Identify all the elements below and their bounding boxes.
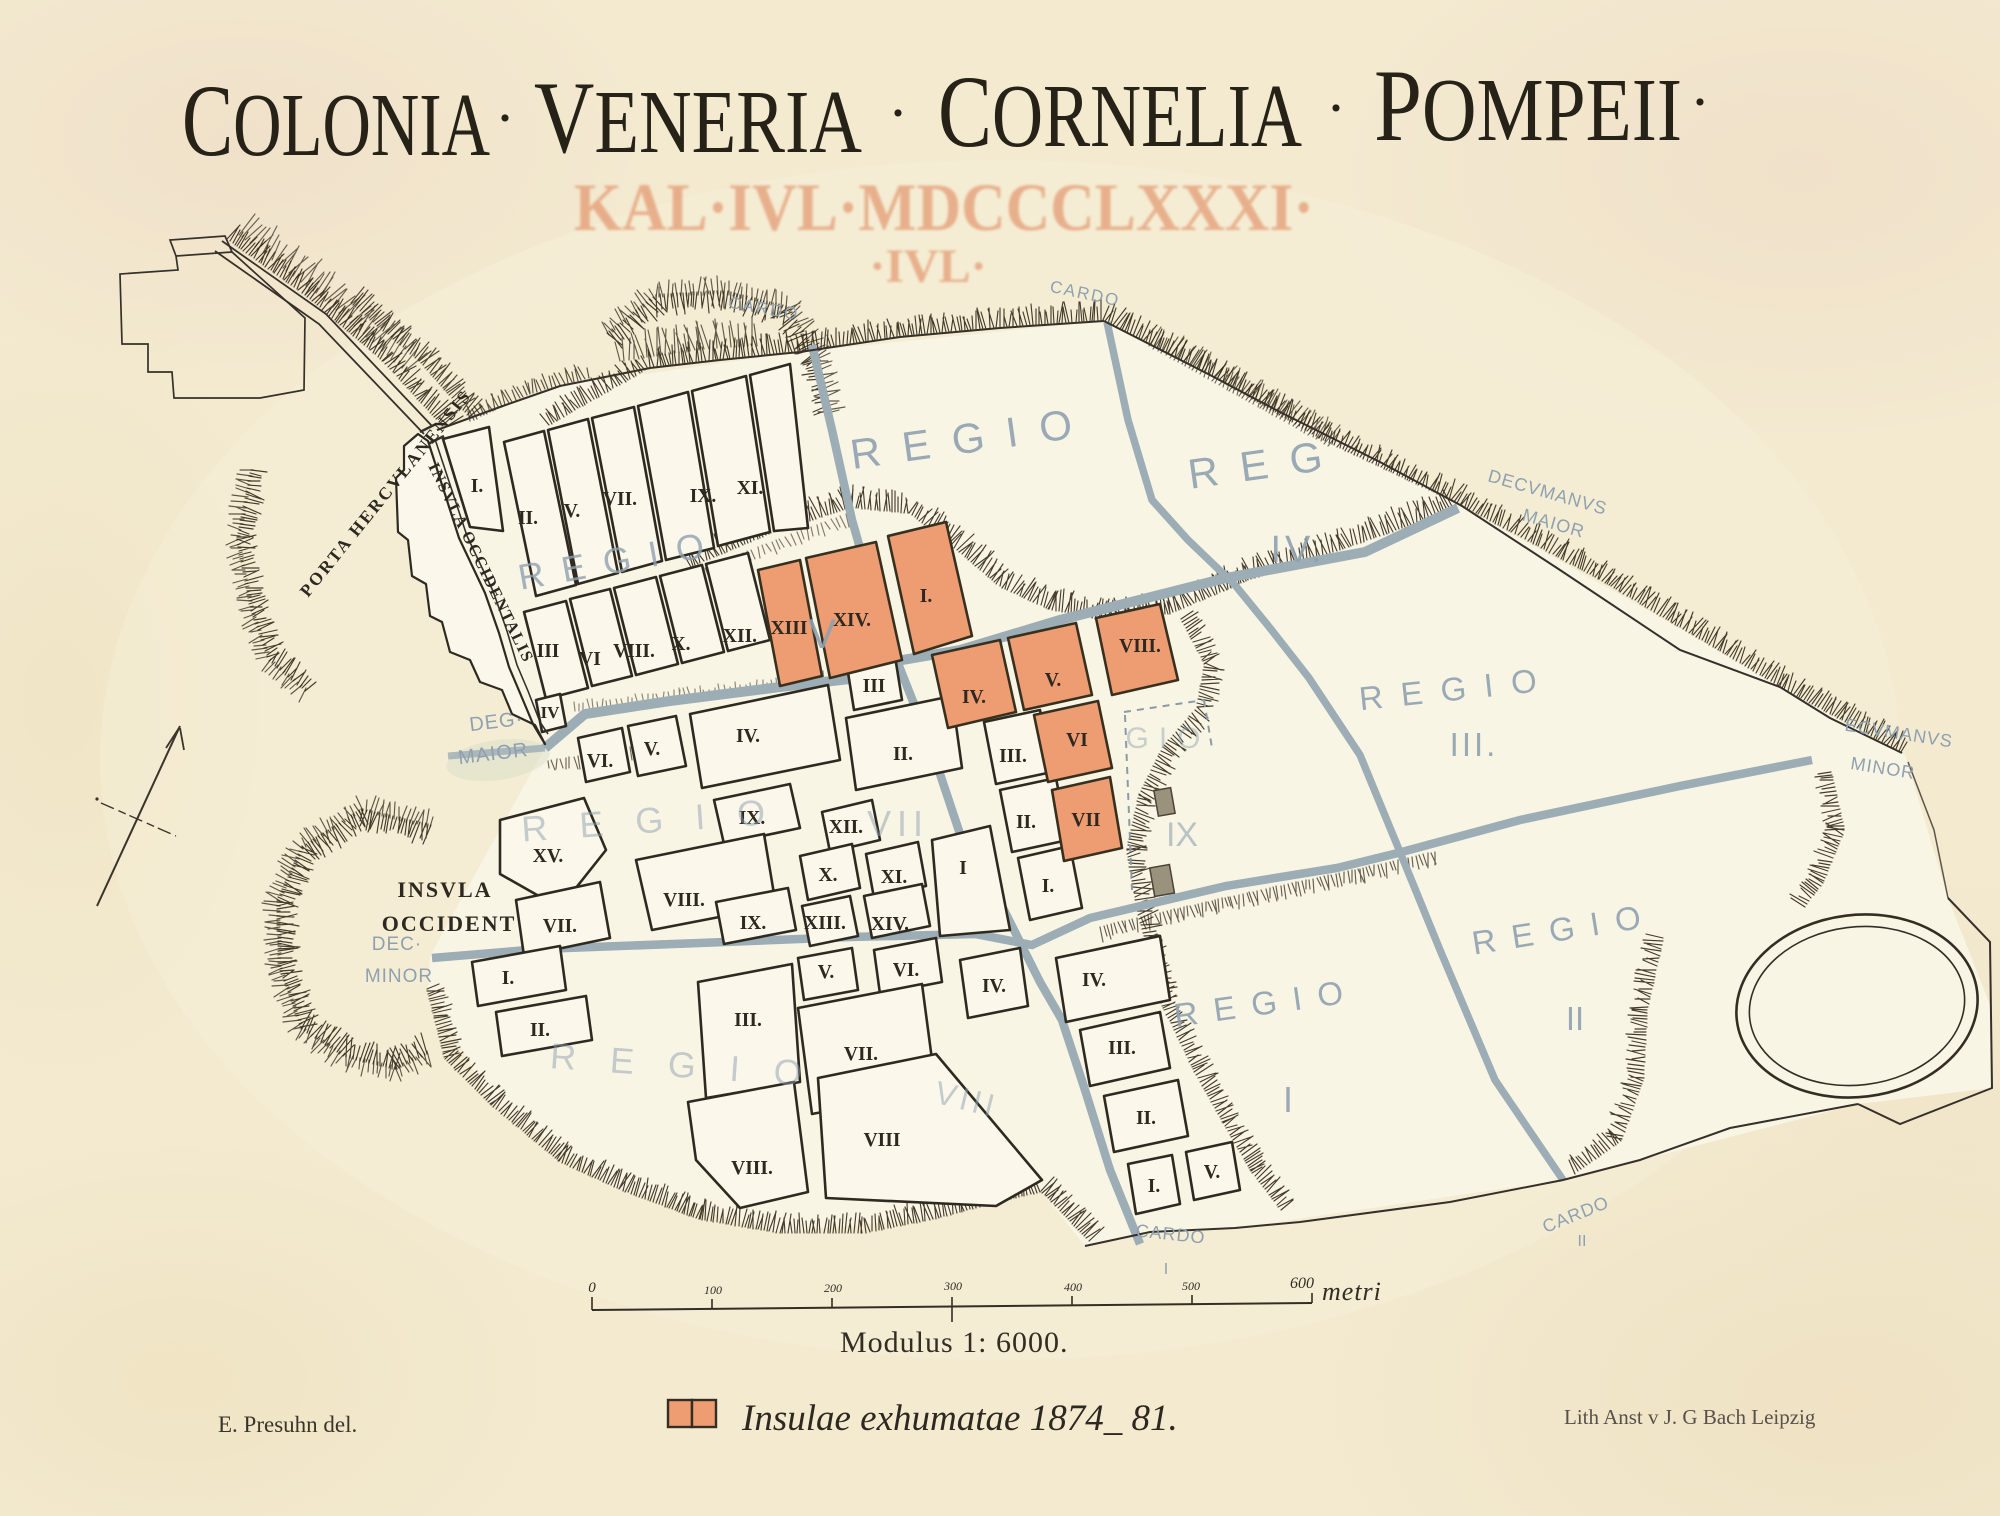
svg-text:VII: VII [1071, 810, 1100, 831]
svg-text:KAL·IVL·MDCCCLXXXI·: KAL·IVL·MDCCCLXXXI· [574, 169, 1314, 245]
svg-text:II.: II. [518, 508, 538, 529]
svg-text:V.: V. [564, 501, 581, 522]
svg-text:X.: X. [672, 634, 691, 655]
svg-text:·: · [495, 85, 515, 151]
svg-text:IX.: IX. [690, 486, 717, 507]
svg-text:XII.: XII. [723, 626, 757, 647]
svg-text:GIO: GIO [1125, 722, 1210, 755]
svg-text:II.: II. [1136, 1108, 1156, 1129]
svg-text:II.: II. [530, 1020, 550, 1041]
svg-text:III: III [863, 676, 886, 697]
svg-text:metri: metri [1322, 1277, 1382, 1306]
svg-text:V.: V. [1045, 670, 1062, 691]
svg-text:Lith Anst v J. G Bach Leipzig: Lith Anst v J. G Bach Leipzig [1564, 1405, 1816, 1429]
svg-text:I: I [959, 858, 967, 879]
svg-text:XII.: XII. [829, 817, 863, 838]
svg-text:COLONIA: COLONIA [182, 64, 490, 178]
svg-text:IV: IV [541, 703, 561, 722]
svg-text:V.: V. [818, 962, 835, 983]
svg-text:VIII.: VIII. [1119, 636, 1161, 657]
svg-text:CORNELIA: CORNELIA [938, 55, 1302, 169]
svg-text:·: · [1326, 75, 1346, 141]
svg-text:600: 600 [1290, 1275, 1314, 1292]
svg-text:VII.: VII. [844, 1044, 878, 1065]
svg-text:XV.: XV. [533, 846, 564, 867]
svg-text:INSVLA: INSVLA [397, 877, 492, 902]
svg-text:500: 500 [1182, 1279, 1200, 1293]
svg-text:II.: II. [1016, 812, 1036, 833]
svg-text:200: 200 [824, 1281, 842, 1295]
svg-text:V.: V. [1204, 1162, 1221, 1183]
svg-text:·: · [1690, 69, 1710, 135]
svg-text:DEC·: DEC· [372, 934, 422, 955]
svg-text:VI: VI [1066, 730, 1088, 751]
svg-text:I.: I. [1148, 1176, 1161, 1197]
svg-text:V.: V. [644, 739, 661, 760]
svg-text:400: 400 [1064, 1280, 1082, 1294]
svg-text:III.: III. [999, 746, 1027, 767]
svg-text:IV.: IV. [982, 976, 1006, 997]
svg-text:100: 100 [704, 1283, 722, 1297]
svg-text:VI.: VI. [893, 960, 920, 981]
svg-text:VI.: VI. [587, 751, 614, 772]
svg-text:Insulae exhumatae 1874_ 81.: Insulae exhumatae 1874_ 81. [741, 1398, 1178, 1439]
svg-text:·: · [888, 80, 908, 146]
svg-text:IV.: IV. [736, 726, 760, 747]
svg-text:II: II [1578, 1233, 1587, 1250]
svg-text:VII.: VII. [543, 916, 577, 937]
svg-text:IV.: IV. [1271, 529, 1326, 571]
svg-text:POMPEII: POMPEII [1374, 49, 1682, 163]
svg-text:Modulus 1: 6000.: Modulus 1: 6000. [840, 1326, 1069, 1359]
svg-text:X.: X. [819, 865, 838, 886]
svg-text:VIII: VIII [864, 1130, 901, 1151]
svg-text:300: 300 [943, 1279, 962, 1293]
svg-text:XI.: XI. [881, 867, 908, 888]
svg-text:I: I [1164, 1261, 1168, 1278]
svg-text:II.: II. [893, 744, 913, 765]
svg-text:VII: VII [867, 803, 929, 844]
svg-text:I.: I. [471, 476, 484, 497]
svg-text:E. Presuhn del.: E. Presuhn del. [218, 1412, 357, 1437]
svg-text:VII.: VII. [603, 489, 637, 510]
svg-text:III.: III. [734, 1010, 762, 1031]
svg-text:XIV.: XIV. [833, 610, 871, 631]
svg-text:VIII.: VIII. [731, 1158, 773, 1179]
svg-text:IV.: IV. [962, 687, 986, 708]
svg-text:XIII.: XIII. [804, 913, 846, 934]
svg-text:VI: VI [579, 649, 601, 670]
svg-text:V: V [808, 610, 836, 657]
svg-text:I.: I. [920, 586, 933, 607]
svg-text:XIII: XIII [771, 618, 808, 639]
svg-text:VIII.: VIII. [663, 890, 705, 911]
svg-text:I: I [1283, 1079, 1293, 1120]
svg-text:IX: IX [1166, 816, 1198, 854]
svg-text:XI.: XI. [737, 478, 764, 499]
svg-text:VIII.: VIII. [613, 641, 655, 662]
svg-text:OCCIDENT: OCCIDENT [382, 911, 517, 936]
svg-text:·IVL·: ·IVL· [869, 240, 986, 293]
svg-text:IX.: IX. [740, 913, 767, 934]
svg-text:III.: III. [1450, 726, 1499, 763]
svg-text:I.: I. [502, 968, 515, 989]
svg-text:XIV.: XIV. [871, 914, 909, 935]
svg-text:0: 0 [588, 1280, 596, 1296]
svg-text:I.: I. [1042, 876, 1055, 897]
svg-text:VENERIA: VENERIA [534, 61, 862, 175]
svg-text:MINOR: MINOR [365, 966, 433, 987]
svg-text:IV.: IV. [1082, 970, 1106, 991]
svg-text:III: III [537, 641, 560, 662]
svg-text:II: II [1566, 1000, 1584, 1037]
svg-text:III.: III. [1108, 1038, 1136, 1059]
